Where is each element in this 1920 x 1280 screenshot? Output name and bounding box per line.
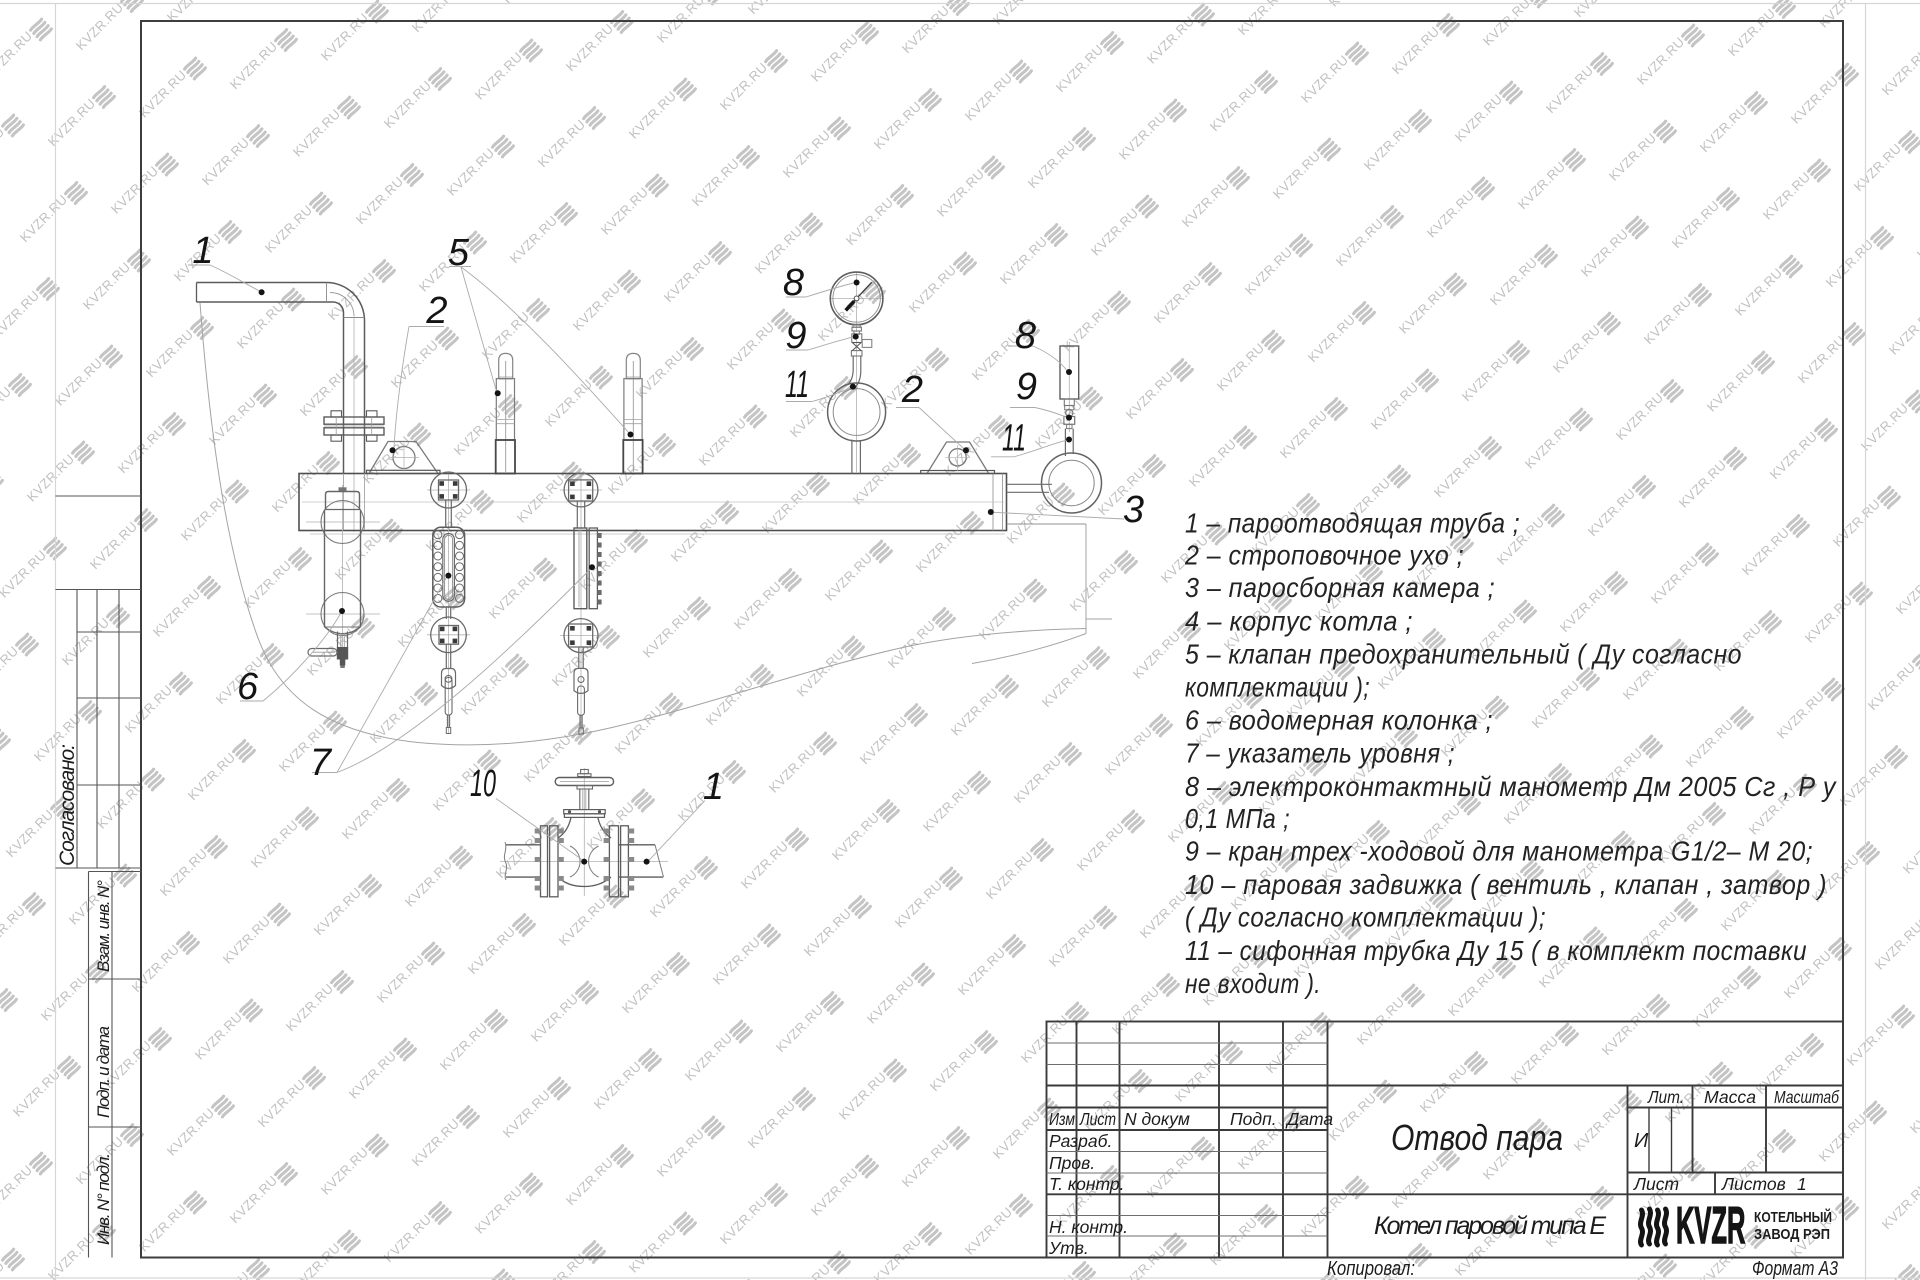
svg-text:Согласовано:: Согласовано: [56,744,79,866]
svg-text:N докум: N докум [1124,1109,1190,1129]
svg-text:KVZR: KVZR [1676,1197,1745,1255]
svg-text:9: 9 [1016,366,1037,408]
svg-text:11 – сифонная трубка Ду 15 (: 11 – сифонная трубка Ду 15 ( в комплект … [1185,935,1807,966]
svg-text:5: 5 [448,232,470,274]
svg-text:Масштаб: Масштаб [1774,1087,1840,1107]
svg-text:не входит ).: не входит ). [1185,968,1321,999]
svg-text:Изм: Изм [1049,1109,1075,1129]
svg-text:9 – кран трех -ходовой для ма: 9 – кран трех -ходовой для манометра G1/… [1185,836,1813,867]
svg-text:Отвод пара: Отвод пара [1391,1117,1563,1158]
svg-text:8: 8 [783,262,804,304]
svg-text:8: 8 [1015,315,1036,357]
svg-text:4 – корпус котла ;: 4 – корпус котла ; [1185,606,1413,637]
svg-text:7 – указатель уровня ;: 7 – указатель уровня ; [1185,738,1455,769]
svg-text:10 – паровая задвижка ( вент: 10 – паровая задвижка ( вентиль , клапан… [1185,869,1827,900]
svg-text:3: 3 [1123,489,1144,531]
svg-text:КОТЕЛЬНЫЙ: КОТЕЛЬНЫЙ [1754,1208,1832,1226]
svg-text:2: 2 [425,290,447,332]
svg-text:( Ду согласно комплектации );: ( Ду согласно комплектации ); [1185,902,1546,933]
svg-text:Котел паровой типа Е: Котел паровой типа Е [1374,1212,1606,1240]
svg-text:6: 6 [237,666,259,708]
svg-text:Н. контр.: Н. контр. [1049,1217,1128,1237]
svg-text:Дата: Дата [1285,1109,1333,1129]
svg-text:0,1 МПа ;: 0,1 МПа ; [1185,803,1290,834]
svg-text:8 – электроконтактный манометр: 8 – электроконтактный манометр Дм 2005 С… [1185,771,1837,802]
svg-text:Инв. N° подл.: Инв. N° подл. [94,1153,113,1245]
svg-text:Разраб.: Разраб. [1049,1131,1112,1151]
svg-text:комплектации );: комплектации ); [1185,671,1370,702]
svg-text:9: 9 [785,315,806,357]
svg-text:Лист: Лист [1633,1174,1679,1194]
svg-text:Масса: Масса [1704,1087,1756,1107]
svg-text:Лист: Лист [1079,1109,1116,1129]
svg-text:2: 2 [901,369,923,411]
svg-text:7: 7 [310,742,333,784]
svg-text:1: 1 [1797,1174,1807,1194]
svg-text:1 – пароотводящая труба ;: 1 – пароотводящая труба ; [1185,508,1520,539]
svg-text:Копировал:: Копировал: [1327,1258,1415,1280]
svg-text:11: 11 [1002,418,1026,460]
svg-text:Подп. и дата: Подп. и дата [94,1026,113,1118]
svg-text:И: И [1634,1130,1649,1152]
svg-text:11: 11 [785,364,809,406]
svg-text:Пров.: Пров. [1049,1153,1095,1173]
svg-text:Утв.: Утв. [1048,1238,1089,1258]
svg-text:Взам. инв. N°: Взам. инв. N° [94,880,113,972]
svg-text:Т. контр.: Т. контр. [1049,1174,1124,1194]
svg-text:Формат А3: Формат А3 [1752,1258,1838,1280]
svg-text:2 – строповочное ухо ;: 2 – строповочное ухо ; [1184,540,1464,571]
svg-text:Подп.: Подп. [1230,1109,1277,1129]
svg-text:5 – клапан предохранительный: 5 – клапан предохранительный ( Ду соглас… [1185,638,1742,669]
svg-text:6 – водомерная колонка ;: 6 – водомерная колонка ; [1185,704,1493,735]
svg-text:1: 1 [192,230,213,272]
svg-text:Листов: Листов [1721,1174,1786,1194]
svg-text:3 – паросборная камера ;: 3 – паросборная камера ; [1185,572,1495,603]
svg-text:10: 10 [470,763,496,805]
svg-text:1: 1 [703,766,724,808]
svg-text:Лит.: Лит. [1647,1087,1684,1107]
svg-text:ЗАВОД РЭП: ЗАВОД РЭП [1754,1226,1830,1243]
